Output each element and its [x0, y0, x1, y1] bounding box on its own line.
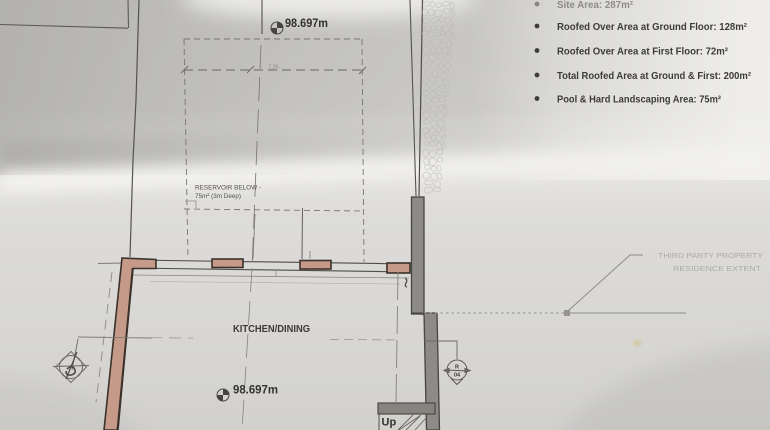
svg-text:RESERVOIR BELOW -: RESERVOIR BELOW - — [195, 185, 261, 192]
svg-text:Up: Up — [382, 417, 397, 429]
svg-text:Site Area: 287m²: Site Area: 287m² — [557, 0, 633, 11]
svg-text:KITCHEN/DINING: KITCHEN/DINING — [233, 323, 310, 335]
svg-text:Roofed Over Area at First Floo: Roofed Over Area at First Floor: 72m² — [557, 46, 728, 58]
svg-text:75m² (3m Deep): 75m² (3m Deep) — [195, 193, 241, 200]
svg-text:98.697m: 98.697m — [285, 18, 328, 30]
svg-text:R: R — [455, 365, 459, 371]
svg-text:98.697m: 98.697m — [233, 385, 278, 397]
svg-text:THIRD PARTY PROPERTY: THIRD PARTY PROPERTY — [658, 253, 763, 260]
svg-text:Pool & Hard Landscaping Area:: Pool & Hard Landscaping Area: 75m² — [557, 94, 721, 106]
svg-text:Roofed Over Area at Ground Flo: Roofed Over Area at Ground Floor: 128m² — [557, 21, 747, 33]
svg-text:04: 04 — [454, 373, 461, 379]
svg-text:7.26: 7.26 — [268, 65, 279, 71]
svg-text:Total Roofed Area at Ground &: Total Roofed Area at Ground & First: 200… — [557, 70, 751, 82]
svg-text:RESIDENCE EXTENT: RESIDENCE EXTENT — [673, 266, 762, 273]
